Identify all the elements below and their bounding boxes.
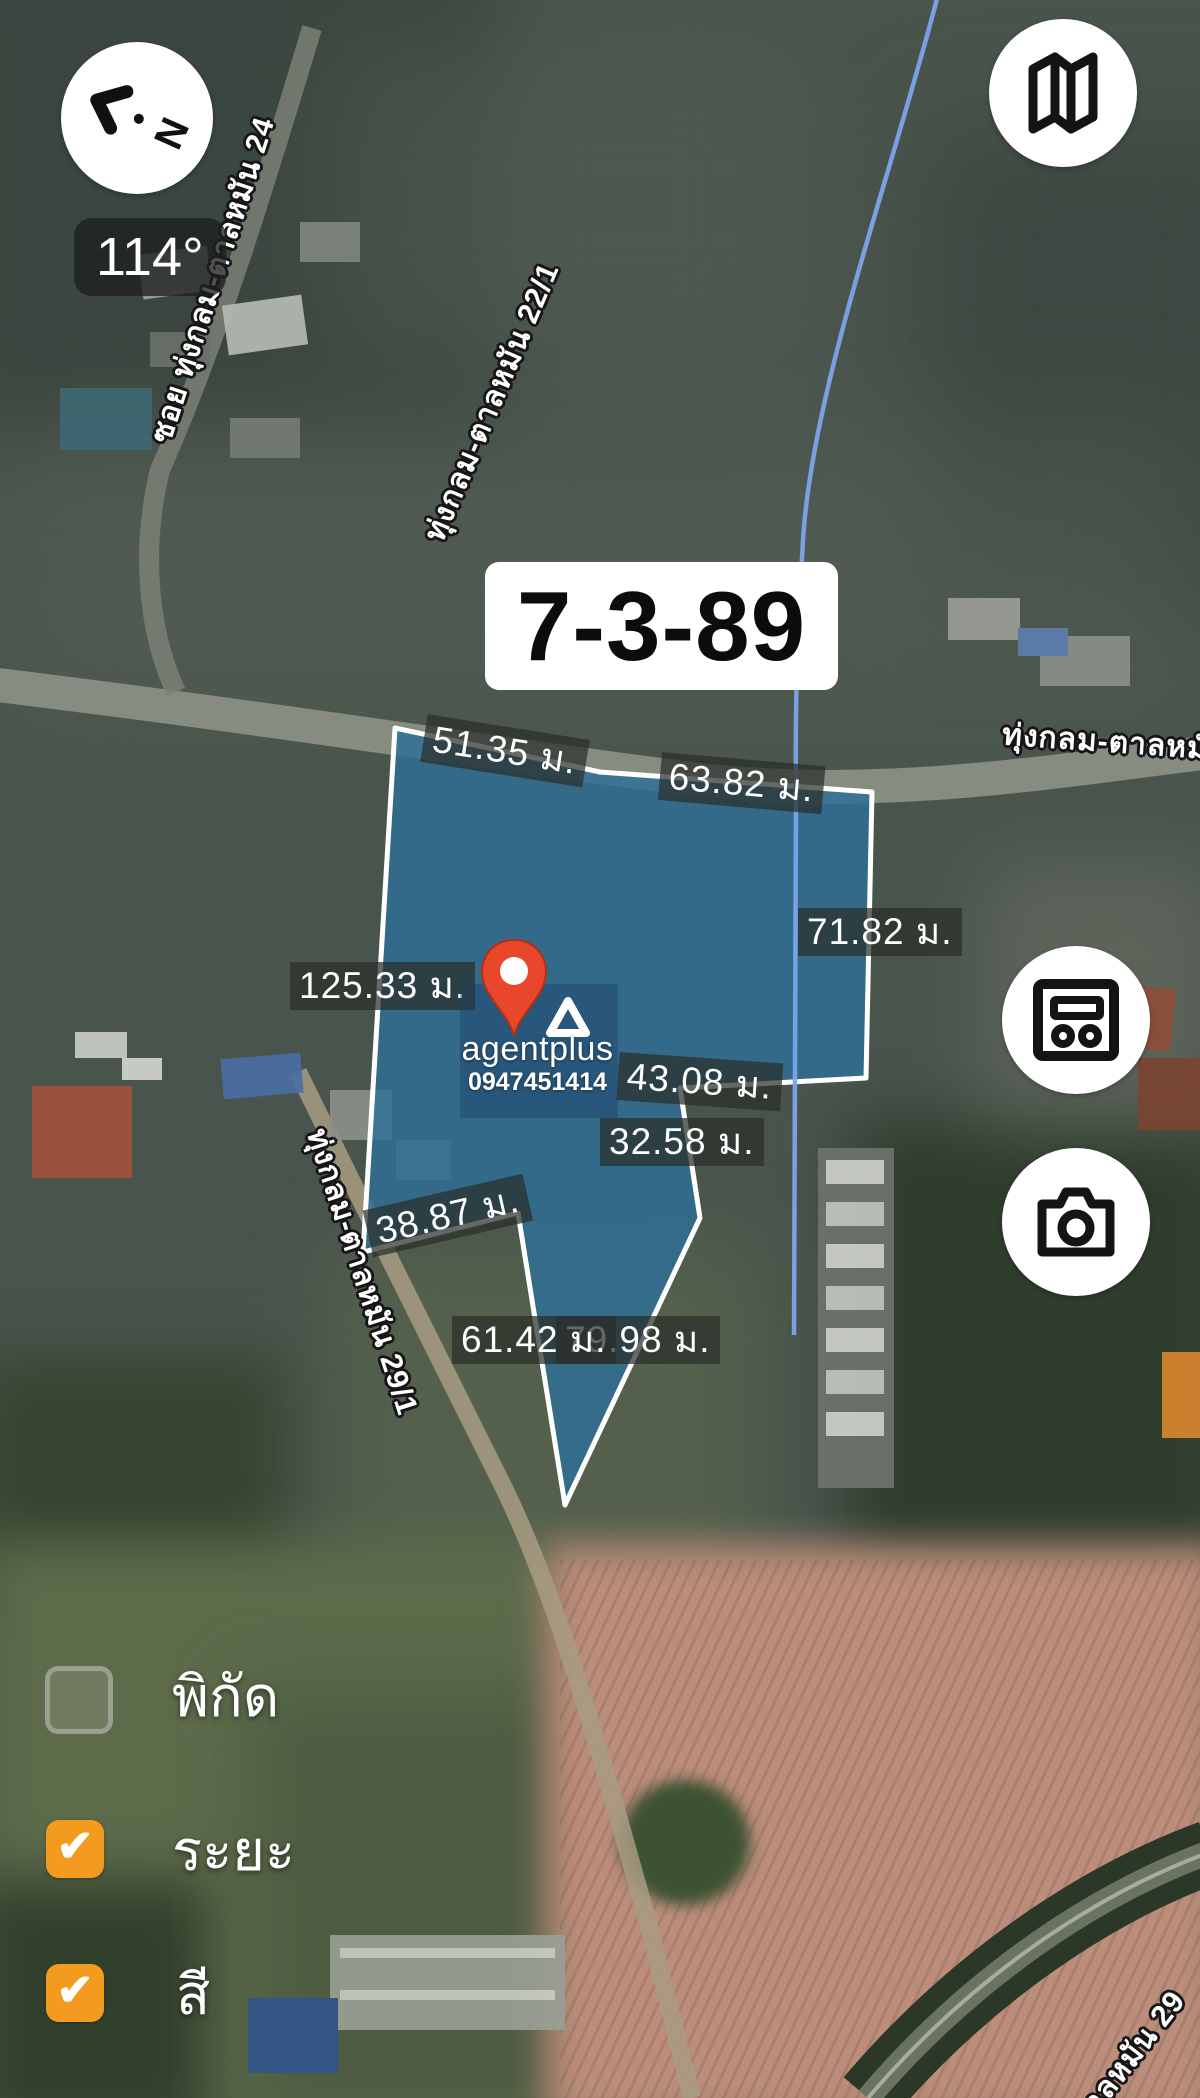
folded-map-icon xyxy=(989,19,1137,167)
measure-label: 71.82 ม. xyxy=(798,908,962,956)
camera-button[interactable] xyxy=(1002,1148,1150,1296)
checkbox-color[interactable]: ✔ xyxy=(46,1964,104,2022)
checkbox-distance[interactable]: ✔ xyxy=(46,1820,104,1878)
land-area-box: 7-3-89 xyxy=(485,562,838,690)
measure-label: 61.42 ม. xyxy=(452,1316,616,1364)
compass-needle-icon: N xyxy=(61,42,213,194)
card-panel-icon xyxy=(1002,946,1150,1094)
watermark-brand: agentplus xyxy=(450,1030,625,1069)
map-style-button[interactable] xyxy=(989,19,1137,167)
measure-label: 125.33 ม. xyxy=(290,962,475,1010)
measure-label: 32.58 ม. xyxy=(600,1118,764,1166)
listing-card-button[interactable] xyxy=(1002,946,1150,1094)
compass-button[interactable]: N xyxy=(61,42,213,194)
bearing-badge: 114° xyxy=(74,218,226,296)
checkbox-coordinates-label: พิกัด xyxy=(172,1652,279,1741)
checkbox-color-label: สี xyxy=(176,1950,210,2039)
checkbox-coordinates[interactable] xyxy=(45,1666,113,1734)
watermark-phone: 0947451414 xyxy=(450,1068,625,1097)
map-screen: 51.35 ม. 63.82 ม. 71.82 ม. 125.33 ม. 43.… xyxy=(0,0,1200,2098)
map-pin[interactable] xyxy=(478,938,550,1043)
svg-text:N: N xyxy=(145,111,197,155)
land-area-value: 7-3-89 xyxy=(517,570,806,683)
camera-icon xyxy=(1002,1148,1150,1296)
check-icon: ✔ xyxy=(57,1825,94,1869)
checkbox-distance-label: ระยะ xyxy=(172,1806,295,1895)
check-icon: ✔ xyxy=(57,1969,94,2013)
pin-icon xyxy=(478,938,550,1038)
